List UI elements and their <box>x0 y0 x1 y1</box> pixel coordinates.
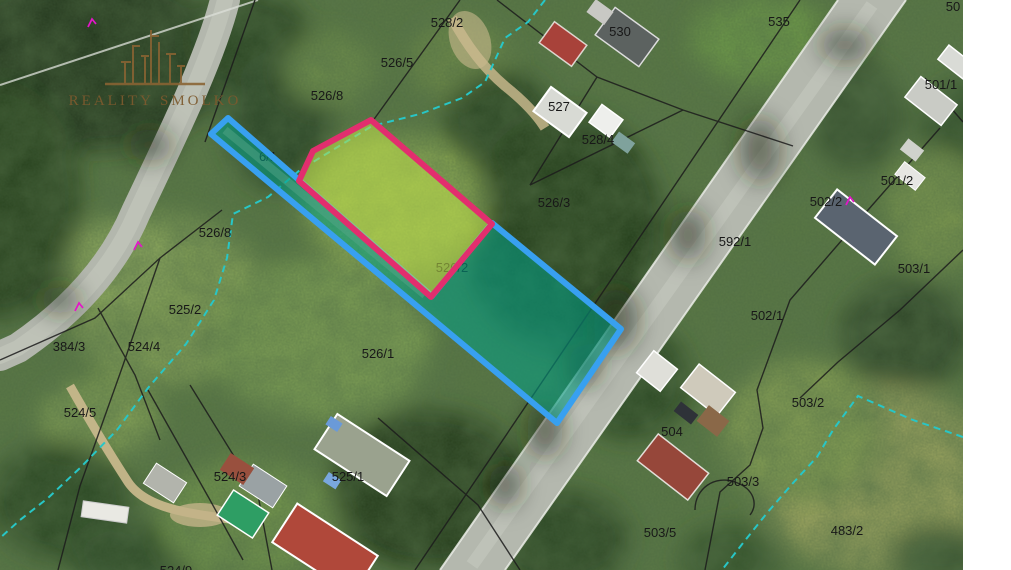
parcel-label: 525/2 <box>169 302 202 317</box>
parcel-label: 384/3 <box>53 339 86 354</box>
parcel-label: 524/3 <box>214 469 247 484</box>
parcel-label: 503/5 <box>644 525 677 540</box>
parcel-label: 526/5 <box>381 55 414 70</box>
parcel-label: 50 <box>946 0 960 14</box>
parcel-label: 503/3 <box>727 474 760 489</box>
parcel-label: 592/1 <box>719 234 752 249</box>
parcel-label: 526/8 <box>199 225 232 240</box>
parcel-label: 527 <box>548 99 570 114</box>
map-canvas: 528/2 530 535 50 526/5 526/8 501/1 527 5… <box>0 0 1011 570</box>
parcel-label: 526/8 <box>311 88 344 103</box>
parcel-label: 503/2 <box>792 395 825 410</box>
parcel-label: 528/2 <box>431 15 464 30</box>
parcel-label: 501/2 <box>881 173 914 188</box>
parcel-label: 526/1 <box>362 346 395 361</box>
parcel-label: 503/1 <box>898 261 931 276</box>
parcel-label: 524/5 <box>64 405 97 420</box>
brand-logo: REALITY SMOLKO <box>50 16 260 110</box>
parcel-label: 528/4 <box>582 132 615 147</box>
parcel-label: 526/3 <box>538 195 571 210</box>
parcel-label: 535 <box>768 14 790 29</box>
parcel-label: 483/2 <box>831 523 864 538</box>
parcel-label: 504 <box>661 424 683 439</box>
parcel-label: 502/2 <box>810 194 843 209</box>
right-gutter <box>963 0 1011 570</box>
parcel-label: 525/1 <box>332 469 365 484</box>
parcel-label: 524/9 <box>160 563 193 570</box>
parcel-label: 501/1 <box>925 77 958 92</box>
parcel-label: 502/1 <box>751 308 784 323</box>
parcel-label: 530 <box>609 24 631 39</box>
parcel-label: 524/4 <box>128 339 161 354</box>
brand-logo-icon <box>50 16 260 90</box>
brand-logo-text: REALITY SMOLKO <box>50 93 260 110</box>
